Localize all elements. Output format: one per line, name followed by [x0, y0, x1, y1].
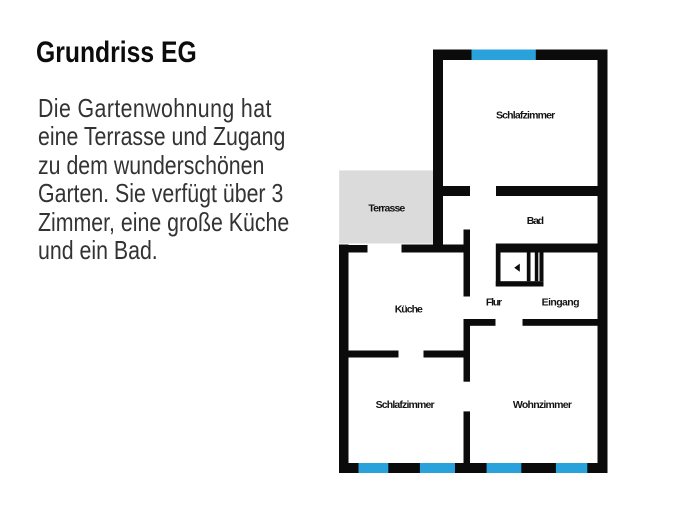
svg-text:Terrasse: Terrasse	[368, 202, 405, 214]
svg-text:Bad: Bad	[527, 215, 544, 227]
svg-text:Küche: Küche	[395, 304, 423, 316]
svg-text:Eingang: Eingang	[542, 297, 580, 309]
svg-text:Flur: Flur	[486, 296, 502, 308]
svg-text:Wohnzimmer: Wohnzimmer	[513, 399, 572, 411]
svg-text:Schlafzimmer: Schlafzimmer	[376, 399, 435, 411]
svg-text:Schlafzimmer: Schlafzimmer	[496, 109, 555, 121]
